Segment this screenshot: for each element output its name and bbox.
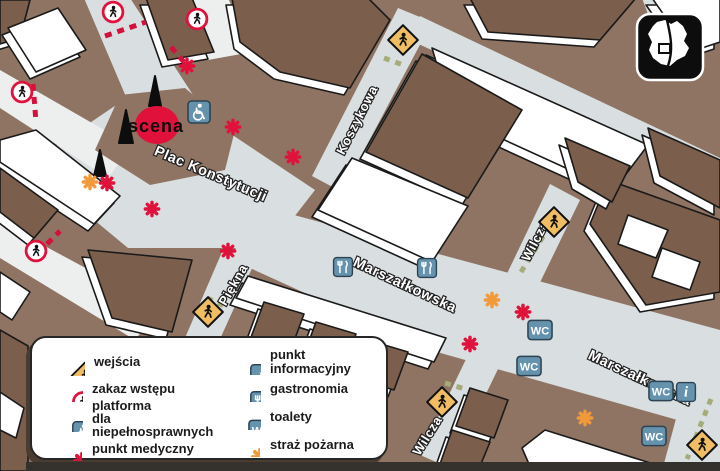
medical-marker [463, 337, 476, 350]
legend-panel: wejścia zakaz wstępu platforma dla niepe… [30, 336, 388, 460]
map-sheet-edge [26, 462, 720, 471]
wc-icon [234, 403, 261, 430]
minimap-location-box [659, 44, 670, 53]
legend-label: zakaz wstępu [92, 382, 175, 395]
info-icon [234, 348, 261, 375]
legend-item-fire-brigade: straż pożarna [234, 431, 386, 458]
toilets-marker [517, 356, 541, 375]
no-entry-icon [56, 375, 83, 402]
fire-brigade-marker [83, 175, 96, 188]
fire-brigade-marker [578, 411, 591, 424]
food-marker [418, 259, 437, 278]
legend-label: platforma dla niepełnosprawnych [92, 399, 234, 439]
legend-item-wheelchair-platform: platforma dla niepełnosprawnych [56, 402, 234, 435]
no-entry-marker [187, 9, 207, 29]
fire-asterisk-icon [234, 431, 261, 458]
legend-item-toilets: toalety [234, 402, 386, 431]
medical-marker [145, 202, 158, 215]
entrance-icon [56, 348, 85, 375]
no-entry-marker [26, 241, 46, 261]
legend-item-food: gastronomia [234, 375, 386, 402]
legend-label: punkt informacyjny [270, 348, 386, 375]
legend-label: toalety [270, 410, 312, 423]
toilets-marker [649, 381, 673, 400]
medical-asterisk-icon [56, 435, 83, 462]
no-entry-marker [103, 2, 123, 22]
warsaw-minimap [637, 14, 703, 80]
event-map: WC i [0, 0, 720, 471]
wheelchair-icon [56, 405, 83, 432]
legend-label: straż pożarna [270, 438, 354, 451]
legend-item-medical: punkt medyczny [56, 435, 234, 462]
no-entry-marker [12, 82, 32, 102]
food-marker [334, 258, 353, 277]
medical-marker [180, 59, 193, 72]
medical-marker [516, 305, 529, 318]
legend-item-entrances: wejścia [56, 348, 234, 375]
medical-marker [286, 150, 299, 163]
medical-marker [226, 120, 239, 133]
legend-label: wejścia [94, 355, 140, 368]
legend-label: gastronomia [270, 382, 348, 395]
food-icon [234, 375, 261, 402]
fire-brigade-marker [485, 293, 498, 306]
stage-label: scena [128, 116, 184, 136]
medical-marker [221, 244, 234, 257]
medical-marker [100, 176, 113, 189]
legend-label: punkt medyczny [92, 442, 194, 455]
toilets-marker [528, 320, 552, 339]
toilets-marker [642, 426, 666, 445]
info-marker [677, 383, 696, 402]
wheelchair-platform-marker [188, 101, 210, 123]
legend-item-info-point: punkt informacyjny [234, 348, 386, 375]
